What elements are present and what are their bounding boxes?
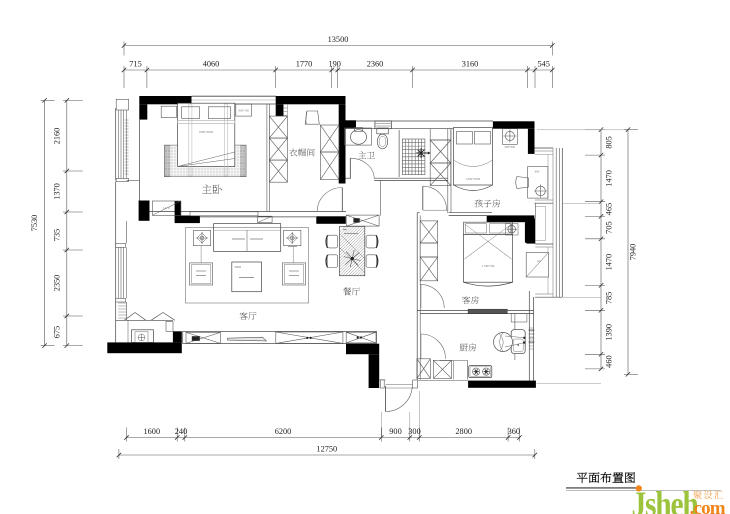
svg-text:13500: 13500 — [328, 35, 349, 44]
svg-text:300: 300 — [408, 427, 420, 436]
svg-text:7940: 7940 — [629, 244, 638, 261]
svg-text:Jsheh: Jsheh — [632, 485, 699, 514]
svg-text:1470: 1470 — [605, 170, 614, 187]
svg-text:1.4*9: 1.4*9 — [162, 206, 170, 210]
svg-text:465: 465 — [605, 203, 614, 215]
svg-text:805: 805 — [605, 136, 614, 148]
svg-text:360: 360 — [508, 427, 520, 436]
svg-text:.com: .com — [690, 498, 726, 514]
svg-text:190: 190 — [328, 60, 340, 69]
svg-text:240: 240 — [175, 427, 187, 436]
svg-text:AC: AC — [537, 259, 541, 263]
svg-text:900: 900 — [389, 427, 401, 436]
svg-text:1770: 1770 — [296, 60, 313, 69]
svg-text:7530: 7530 — [30, 215, 39, 232]
svg-text:1200*2000: 1200*2000 — [466, 177, 481, 181]
svg-text:1800*2000: 1800*2000 — [199, 130, 214, 134]
svg-text:2360: 2360 — [367, 60, 384, 69]
svg-text:675: 675 — [53, 326, 62, 338]
svg-text:600*600: 600*600 — [505, 145, 516, 149]
svg-text:2800: 2800 — [455, 427, 472, 436]
svg-text:800*500: 800*500 — [238, 109, 249, 113]
svg-text:735: 735 — [53, 229, 62, 241]
svg-text:460: 460 — [605, 355, 614, 367]
svg-text:12750: 12750 — [316, 445, 337, 454]
svg-text:1470: 1470 — [605, 254, 614, 271]
svg-text:1600: 1600 — [144, 427, 161, 436]
svg-text:6200: 6200 — [275, 427, 292, 436]
svg-text:2350: 2350 — [53, 275, 62, 292]
svg-text:545: 545 — [537, 60, 549, 69]
svg-text:705: 705 — [605, 221, 614, 233]
svg-text:1.5M*2M: 1.5M*2M — [482, 264, 495, 268]
svg-text:1390: 1390 — [605, 324, 614, 341]
svg-text:785: 785 — [605, 292, 614, 304]
svg-text:2160: 2160 — [53, 128, 62, 145]
svg-text:715: 715 — [129, 60, 141, 69]
svg-text:4060: 4060 — [203, 60, 220, 69]
svg-text:3160: 3160 — [462, 60, 479, 69]
svg-text:600: 600 — [535, 170, 540, 174]
svg-text:1370: 1370 — [53, 183, 62, 200]
